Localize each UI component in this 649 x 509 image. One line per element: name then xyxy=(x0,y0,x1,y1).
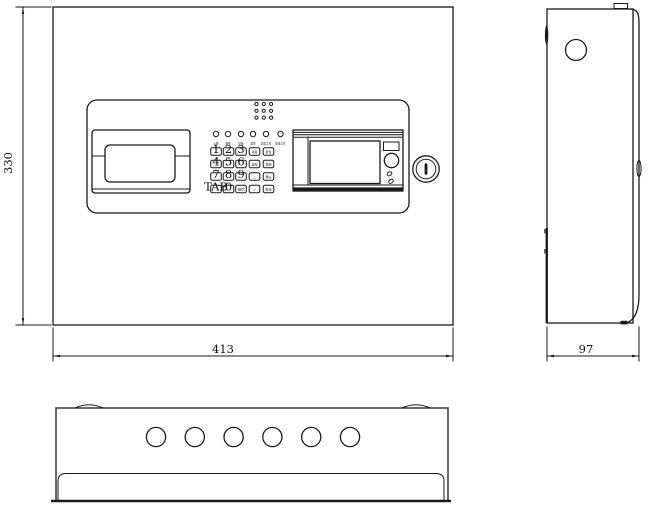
keypad-button-label: 9 xyxy=(237,167,244,181)
engineering-drawing-page: 火警故障屏蔽监管主电工作备电工作 123消音复位456自检查询789△确认TAB… xyxy=(0,0,649,509)
led-indicator xyxy=(213,131,218,136)
led-indicator xyxy=(250,131,255,136)
keypad-button-label: ▽ xyxy=(253,187,256,191)
arrow-right-icon xyxy=(446,355,453,357)
keypad-button-label: 复位 xyxy=(265,149,271,154)
keypad-button-label: 消音 xyxy=(251,149,257,154)
arrow-left-icon xyxy=(547,355,554,357)
speaker-hole xyxy=(262,116,265,119)
side-door-outline xyxy=(547,9,633,323)
side-mounting-hole xyxy=(566,40,587,61)
bottom-box-outline xyxy=(56,408,448,501)
keypad-button-label: 翻页 xyxy=(238,186,244,191)
speaker-hole xyxy=(255,109,258,112)
speaker-hole xyxy=(270,109,273,112)
speaker-hole xyxy=(262,109,265,112)
arrow-up-icon xyxy=(22,7,24,14)
dimension-depth: 97 xyxy=(547,327,639,361)
led-indicator xyxy=(238,131,243,136)
keypad-button-label: 确认 xyxy=(265,174,271,179)
led-indicator xyxy=(278,131,283,136)
speaker-grill xyxy=(255,102,273,119)
dimension-height: 330 xyxy=(1,7,51,325)
dimension-label-depth: 97 xyxy=(579,342,594,356)
cable-hole xyxy=(263,427,282,446)
cable-hole xyxy=(224,427,243,446)
led-indicator xyxy=(225,131,230,136)
control-panel-outline xyxy=(87,100,409,213)
hinge-nub xyxy=(544,229,546,234)
keypad-button-label: 自检 xyxy=(251,161,257,166)
hinge-strip xyxy=(546,228,548,323)
cable-hole xyxy=(340,427,359,446)
lcd-screen xyxy=(310,141,380,184)
hinge-bump-top xyxy=(545,26,548,45)
cable-entry-holes xyxy=(146,427,359,446)
lcd-side-label xyxy=(384,142,400,151)
speaker-hole xyxy=(255,116,258,119)
keypad: 123消音复位456自检查询789△确认TAB0翻页▽取消 xyxy=(204,142,274,194)
navigation-knob xyxy=(384,153,398,167)
dimension-width: 413 xyxy=(53,328,453,361)
bottom-bracket-tab xyxy=(621,321,628,325)
lcd-side-led xyxy=(386,171,392,177)
led-label: 监管 xyxy=(250,142,256,146)
keypad-button-label: 0 xyxy=(225,180,232,194)
keyhole-icon xyxy=(425,163,428,175)
lcd-side-led xyxy=(388,178,394,184)
speaker-hole xyxy=(262,102,265,105)
speaker-hole xyxy=(270,116,273,119)
lcd-module xyxy=(293,130,403,191)
cable-hole xyxy=(302,427,321,446)
drawing-canvas: 火警故障屏蔽监管主电工作备电工作 123消音复位456自检查询789△确认TAB… xyxy=(0,0,649,509)
top-bracket-tab xyxy=(614,4,628,9)
front-view: 火警故障屏蔽监管主电工作备电工作 123消音复位456自检查询789△确认TAB… xyxy=(53,7,453,325)
lcd-bottom-band xyxy=(293,187,403,191)
keypad-button-label: 查询 xyxy=(265,161,271,166)
led-label: 备电工作 xyxy=(275,142,286,146)
bottom-view xyxy=(51,405,451,501)
printer-module xyxy=(92,130,190,193)
keypad-button-label: △ xyxy=(253,175,256,179)
cable-hole xyxy=(146,427,165,446)
speaker-hole xyxy=(270,102,273,105)
cable-hole xyxy=(185,427,204,446)
hinge-nub xyxy=(544,249,546,254)
dimension-label-height: 330 xyxy=(1,152,15,174)
arrow-right-icon xyxy=(632,355,639,357)
arrow-down-icon xyxy=(22,318,24,325)
speaker-hole xyxy=(255,102,258,105)
arrow-left-icon xyxy=(53,355,60,357)
key-lock xyxy=(413,156,439,182)
led-indicator xyxy=(263,131,268,136)
dimension-label-width: 413 xyxy=(212,342,234,356)
led-label: 主电工作 xyxy=(261,142,272,146)
printer-door xyxy=(105,145,175,182)
keypad-button-label: 取消 xyxy=(265,186,271,191)
door-seam xyxy=(58,474,444,502)
side-view xyxy=(544,4,641,325)
